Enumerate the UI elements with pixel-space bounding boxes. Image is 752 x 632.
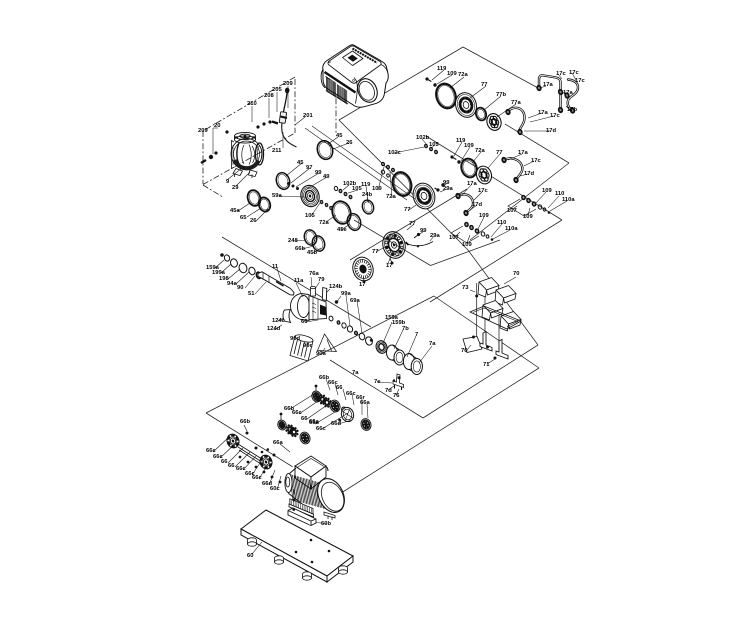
- svg-text:7d: 7d: [385, 388, 392, 394]
- svg-text:77: 77: [481, 82, 487, 88]
- svg-text:66: 66: [301, 319, 308, 325]
- svg-text:105: 105: [305, 213, 315, 219]
- svg-text:60b: 60b: [321, 521, 331, 527]
- svg-text:17: 17: [359, 282, 365, 288]
- svg-text:99: 99: [420, 228, 427, 234]
- svg-text:11a: 11a: [294, 278, 304, 284]
- svg-text:17d: 17d: [472, 202, 482, 208]
- svg-text:109: 109: [464, 143, 474, 149]
- svg-text:26: 26: [346, 140, 353, 146]
- svg-text:66d: 66d: [331, 421, 341, 427]
- svg-text:79: 79: [318, 277, 325, 283]
- svg-text:124d: 124d: [267, 326, 281, 332]
- svg-text:77: 77: [496, 150, 502, 156]
- svg-text:77: 77: [409, 221, 415, 227]
- svg-text:109: 109: [462, 242, 472, 248]
- svg-text:76: 76: [461, 348, 468, 354]
- svg-text:110a: 110a: [562, 197, 575, 203]
- svg-text:209: 209: [283, 81, 293, 87]
- svg-text:45a: 45a: [230, 208, 240, 214]
- svg-text:119: 119: [361, 182, 371, 188]
- svg-text:72a: 72a: [386, 194, 396, 200]
- svg-text:49: 49: [323, 174, 330, 180]
- svg-text:66: 66: [301, 416, 308, 422]
- svg-text:73: 73: [462, 285, 469, 291]
- svg-text:90d: 90d: [290, 336, 300, 342]
- svg-text:66: 66: [336, 385, 343, 391]
- svg-text:77a: 77a: [511, 100, 521, 106]
- svg-text:66b: 66b: [295, 246, 305, 252]
- svg-text:90a: 90a: [316, 351, 326, 357]
- svg-text:109: 109: [542, 188, 552, 194]
- svg-text:94a: 94a: [227, 281, 237, 287]
- svg-text:45: 45: [336, 133, 343, 139]
- svg-text:17a: 17a: [543, 82, 553, 88]
- svg-text:66b: 66b: [240, 419, 250, 425]
- svg-text:109: 109: [447, 71, 457, 77]
- svg-text:7: 7: [415, 332, 418, 338]
- svg-text:77: 77: [404, 207, 410, 213]
- svg-text:45e: 45e: [337, 227, 347, 233]
- svg-text:17d: 17d: [546, 128, 556, 134]
- svg-text:72a: 72a: [475, 148, 485, 154]
- svg-text:69a: 69a: [350, 298, 360, 304]
- svg-text:99: 99: [315, 170, 322, 176]
- svg-text:107: 107: [507, 208, 517, 214]
- svg-text:209: 209: [198, 128, 208, 134]
- svg-text:17a: 17a: [538, 110, 548, 116]
- svg-text:29a: 29a: [443, 186, 453, 192]
- svg-text:110a: 110a: [505, 226, 518, 232]
- svg-text:45: 45: [297, 160, 304, 166]
- svg-text:66a: 66a: [360, 400, 370, 406]
- svg-text:45b: 45b: [307, 250, 317, 256]
- svg-text:97: 97: [306, 165, 312, 171]
- svg-text:29a: 29a: [430, 233, 440, 239]
- svg-text:109: 109: [479, 213, 489, 219]
- svg-text:90c: 90c: [303, 343, 313, 349]
- svg-text:51: 51: [248, 291, 255, 297]
- svg-text:109: 109: [372, 186, 382, 192]
- svg-text:20: 20: [214, 123, 220, 129]
- svg-text:17c: 17c: [556, 71, 566, 77]
- svg-text:210: 210: [247, 101, 257, 107]
- svg-text:7a: 7a: [352, 370, 359, 376]
- svg-text:60c: 60c: [270, 486, 280, 492]
- svg-text:72a: 72a: [319, 220, 329, 226]
- svg-text:72a: 72a: [458, 72, 468, 78]
- svg-text:102b: 102b: [416, 135, 430, 141]
- svg-text:11: 11: [272, 264, 279, 270]
- svg-text:76: 76: [393, 393, 400, 399]
- svg-text:26: 26: [250, 218, 257, 224]
- svg-text:7a: 7a: [429, 341, 436, 347]
- svg-text:29: 29: [232, 185, 239, 191]
- svg-text:70: 70: [513, 271, 519, 277]
- svg-text:17c: 17c: [550, 113, 560, 119]
- svg-text:66c: 66c: [346, 391, 356, 397]
- svg-text:66c: 66c: [252, 475, 262, 481]
- svg-text:102c: 102c: [388, 150, 402, 156]
- svg-text:201: 201: [303, 113, 313, 119]
- svg-text:17b: 17b: [567, 107, 577, 113]
- svg-text:90: 90: [237, 285, 243, 291]
- svg-text:248: 248: [288, 238, 298, 244]
- svg-text:17a: 17a: [467, 181, 477, 187]
- svg-text:60: 60: [247, 553, 253, 559]
- svg-text:105: 105: [429, 142, 439, 148]
- svg-text:17c: 17c: [569, 70, 579, 76]
- svg-text:17c: 17c: [531, 158, 541, 164]
- svg-text:124c: 124c: [272, 318, 286, 324]
- svg-text:7b: 7b: [402, 326, 409, 332]
- svg-text:109: 109: [523, 214, 533, 220]
- svg-text:17c: 17c: [575, 78, 585, 84]
- svg-text:77b: 77b: [496, 92, 506, 98]
- svg-text:124b: 124b: [329, 284, 343, 290]
- svg-text:17: 17: [386, 263, 392, 269]
- svg-text:211: 211: [272, 148, 282, 154]
- svg-text:17d: 17d: [524, 171, 534, 177]
- svg-text:71: 71: [483, 362, 490, 368]
- svg-text:205: 205: [272, 87, 282, 93]
- svg-text:77: 77: [372, 249, 378, 255]
- svg-text:66: 66: [228, 463, 235, 469]
- svg-text:119: 119: [437, 66, 447, 72]
- svg-text:66c: 66c: [316, 426, 326, 432]
- svg-text:66a: 66a: [273, 440, 283, 446]
- svg-text:7e: 7e: [374, 379, 381, 385]
- svg-text:17a: 17a: [518, 150, 528, 156]
- svg-text:59a: 59a: [272, 193, 282, 199]
- svg-text:99a: 99a: [341, 291, 351, 297]
- svg-text:66a: 66a: [309, 420, 319, 426]
- svg-text:24b: 24b: [362, 192, 372, 198]
- svg-text:17c: 17c: [478, 188, 488, 194]
- svg-text:17a: 17a: [563, 90, 573, 96]
- svg-text:208: 208: [264, 93, 274, 99]
- svg-text:65: 65: [240, 215, 247, 221]
- svg-text:107: 107: [449, 235, 459, 241]
